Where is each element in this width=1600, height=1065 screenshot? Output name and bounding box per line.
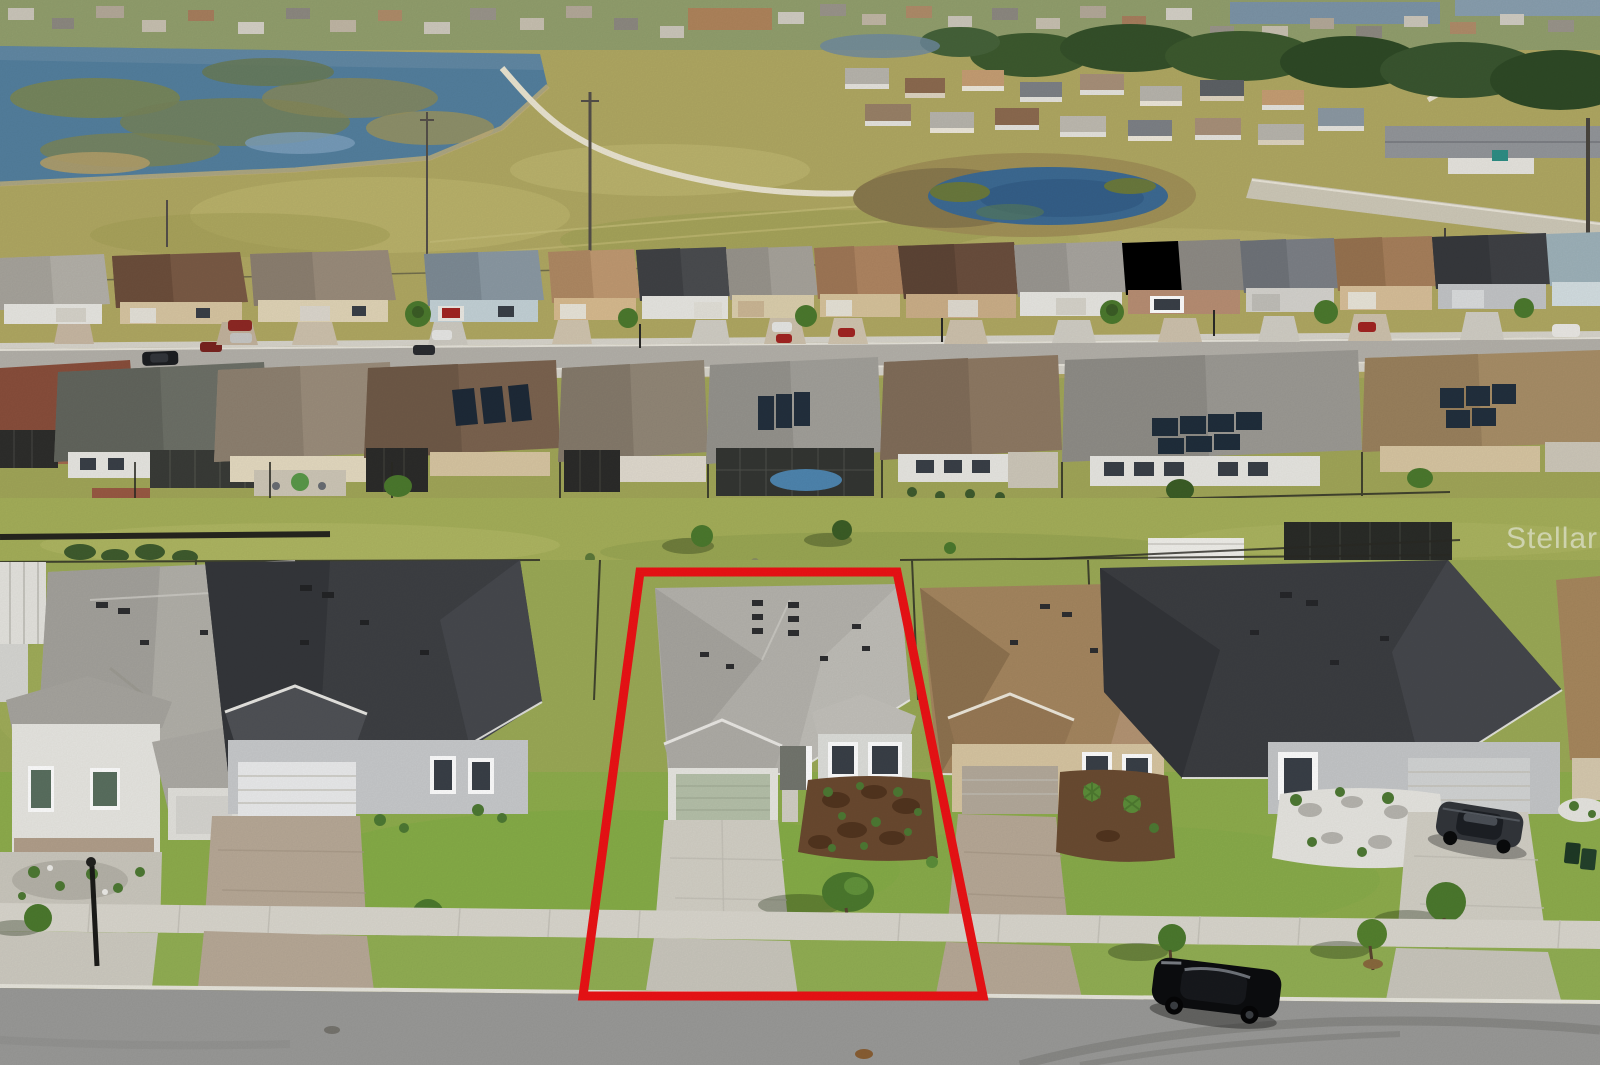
aerial-photo: StellarMLS [0, 0, 1600, 1065]
photo-grain [0, 0, 1600, 1065]
